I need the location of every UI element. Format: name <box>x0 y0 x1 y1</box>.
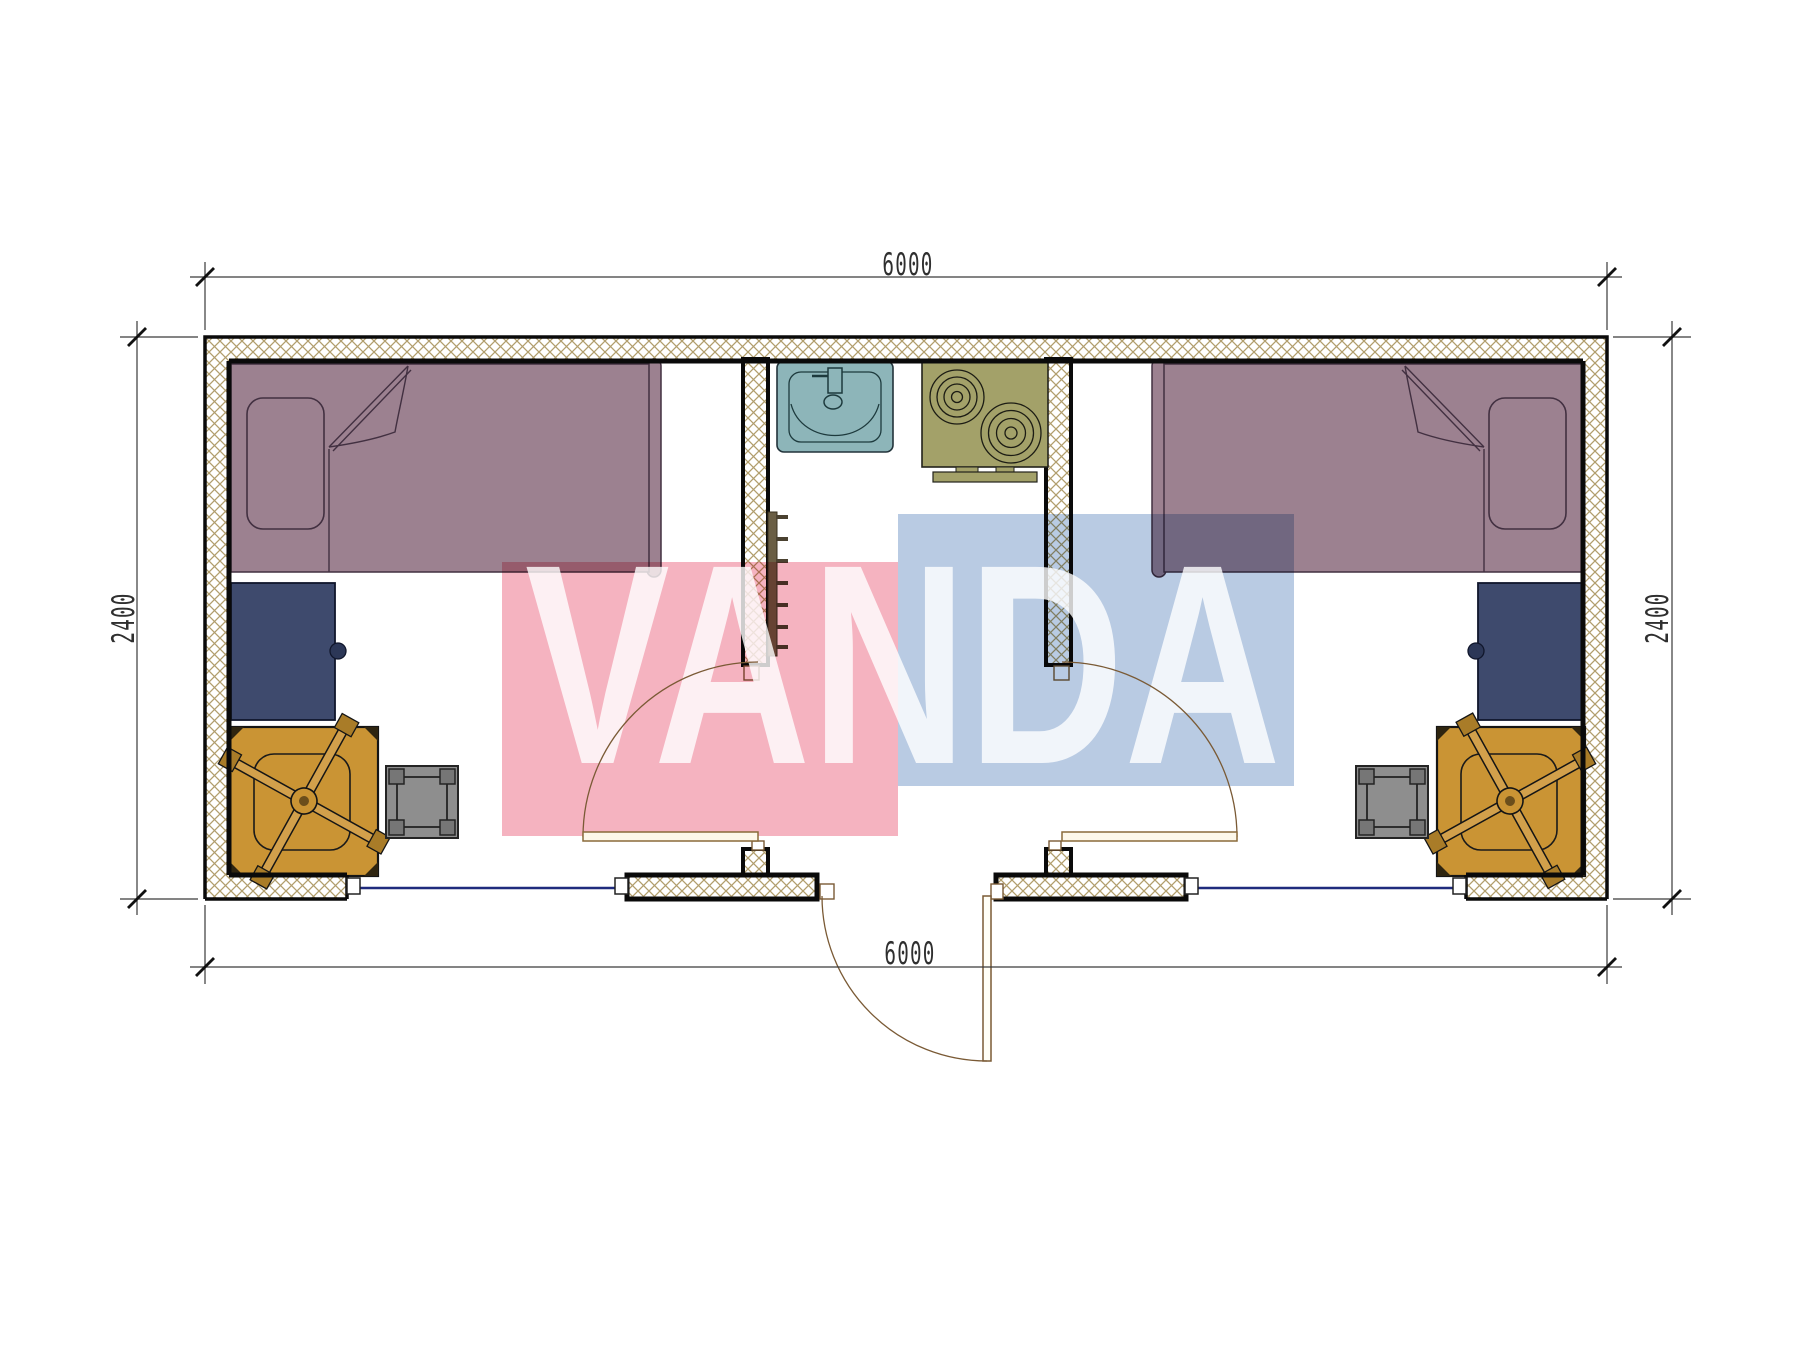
room-door-left <box>583 662 758 841</box>
door-swing-overlay <box>0 0 1800 1350</box>
dimension-label-right: 2400 <box>1640 592 1676 643</box>
dimension-label-bottom: 6000 <box>884 936 935 972</box>
floor-plan-canvas: VANDA 6000 6000 2400 2400 <box>0 0 1800 1350</box>
room-door-right <box>1062 662 1237 841</box>
dimension-label-left: 2400 <box>106 592 142 643</box>
dimension-label-top: 6000 <box>882 247 933 283</box>
